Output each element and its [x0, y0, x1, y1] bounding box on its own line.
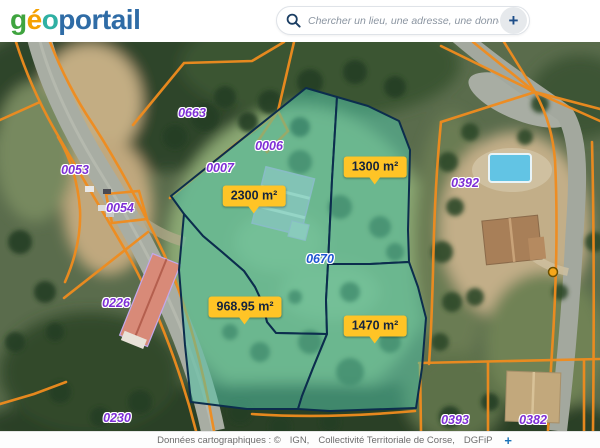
attribution-expand-button[interactable]: +: [504, 434, 512, 447]
area-label-1300: 1300 m²: [344, 157, 407, 178]
attribution-prefix: Données cartographiques : ©: [157, 435, 281, 446]
logo-letter-g: g: [10, 4, 27, 35]
area-label-pointer: [239, 317, 251, 325]
attribution-sources: IGN,Collectivité Territoriale de Corse,D…: [281, 435, 493, 446]
add-layer-button[interactable]: +: [500, 7, 527, 34]
attribution-source[interactable]: DGFiP: [464, 435, 493, 446]
area-label-pointer: [369, 177, 381, 185]
area-label-layer: 2300 m²1300 m²968.95 m²1470 m²: [0, 42, 600, 431]
search-icon: [286, 13, 301, 28]
geoportail-logo[interactable]: géoportail: [10, 0, 140, 42]
attribution-bar: Données cartographiques : © IGN,Collecti…: [0, 431, 600, 448]
search-bar[interactable]: [276, 6, 530, 35]
header: géoportail +: [0, 0, 600, 42]
search-input[interactable]: [308, 15, 499, 27]
area-label-pointer: [369, 336, 381, 344]
logo-letter-e: é: [27, 4, 42, 35]
logo-text: portail: [58, 4, 140, 35]
area-label-2300: 2300 m²: [223, 186, 286, 207]
logo-letter-o: o: [42, 4, 59, 35]
area-label-pointer: [248, 206, 260, 214]
attribution-source[interactable]: IGN,: [290, 435, 310, 446]
attribution-source[interactable]: Collectivité Territoriale de Corse,: [318, 435, 455, 446]
area-label-1470: 1470 m²: [344, 316, 407, 337]
area-label-968.95: 968.95 m²: [209, 297, 282, 318]
map-canvas[interactable]: 0663005300070006005402260230067003920393…: [0, 42, 600, 431]
